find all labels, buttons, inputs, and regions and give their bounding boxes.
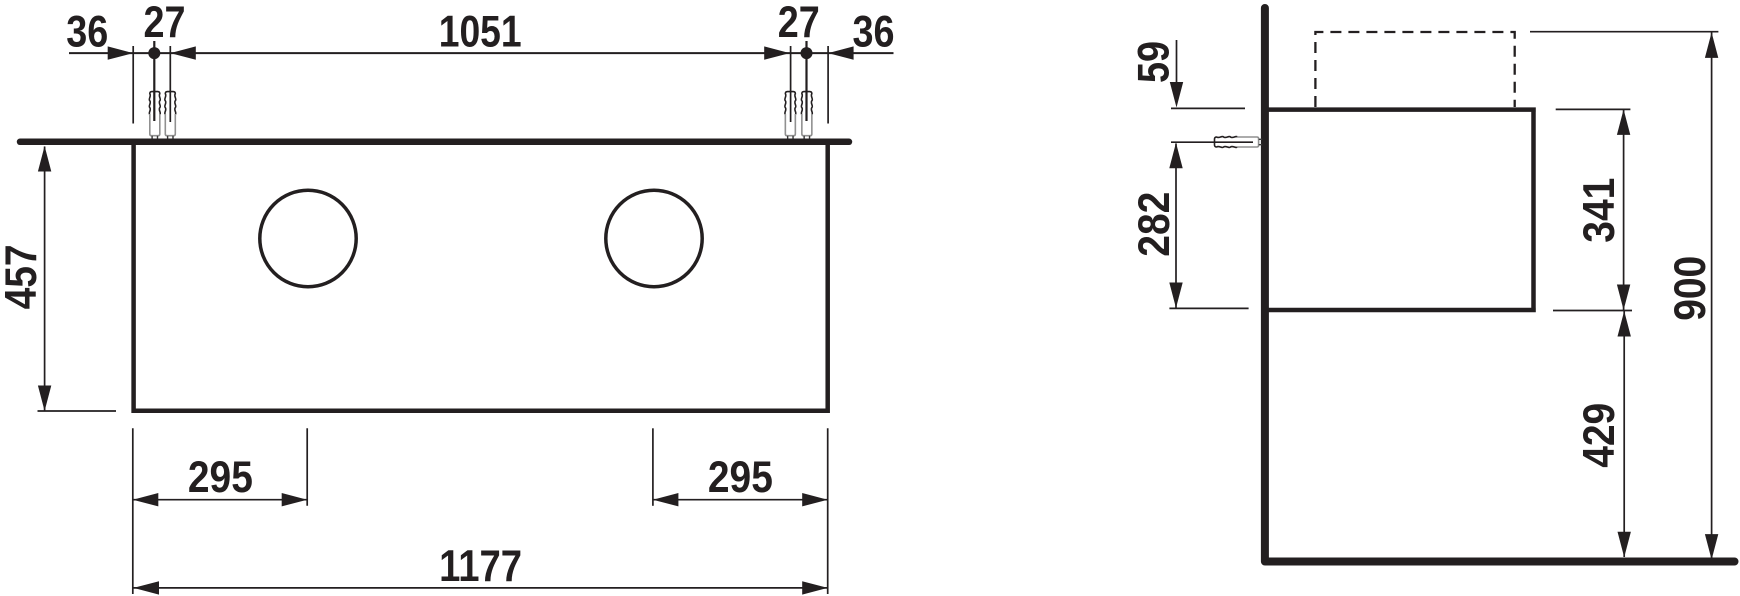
svg-text:295: 295 [708, 453, 773, 502]
svg-text:900: 900 [1666, 256, 1715, 321]
svg-text:27: 27 [144, 0, 186, 47]
svg-text:282: 282 [1130, 192, 1179, 257]
svg-text:341: 341 [1575, 178, 1624, 243]
svg-text:1051: 1051 [439, 7, 522, 56]
svg-text:36: 36 [66, 7, 108, 56]
svg-text:59: 59 [1130, 41, 1179, 83]
svg-text:457: 457 [0, 244, 46, 309]
svg-text:295: 295 [188, 453, 253, 502]
svg-text:27: 27 [778, 0, 820, 47]
svg-text:429: 429 [1575, 403, 1624, 468]
svg-text:1177: 1177 [439, 542, 522, 591]
svg-text:36: 36 [853, 7, 895, 56]
